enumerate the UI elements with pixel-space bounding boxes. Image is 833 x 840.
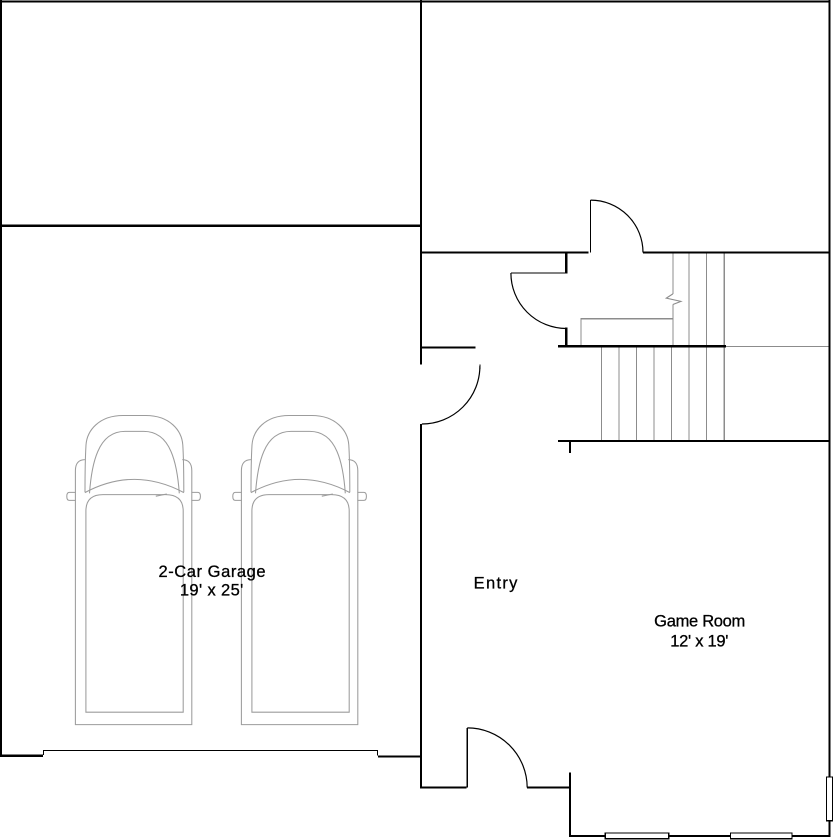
svg-text:Entry: Entry bbox=[474, 575, 519, 593]
svg-text:19' x 25': 19' x 25' bbox=[180, 582, 244, 600]
svg-text:Game Room: Game Room bbox=[654, 613, 745, 631]
svg-text:12' x 19': 12' x 19' bbox=[670, 633, 728, 651]
svg-text:2-Car Garage: 2-Car Garage bbox=[158, 563, 266, 581]
